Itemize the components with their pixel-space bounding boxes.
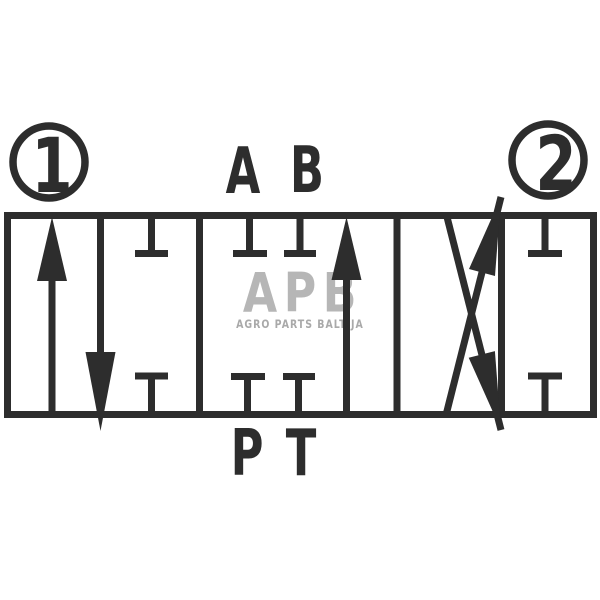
section-3-crossed-arrows <box>447 197 502 430</box>
port-b-label: B <box>290 139 324 203</box>
section-2-neutral <box>231 217 362 414</box>
spool-2-number: 2 <box>535 126 576 202</box>
cross-arrow-up-head <box>469 197 501 276</box>
section-1-parallel-arrows <box>37 215 168 431</box>
blocked-port-bottom-icon <box>135 376 168 412</box>
valve-schematic: APB AGRO PARTS BALTIJA <box>0 0 600 600</box>
port-p-label: P <box>231 422 264 486</box>
cross-arrow-down-head <box>469 351 501 430</box>
down-arrow-head <box>86 352 116 431</box>
section-4-blocked <box>528 218 562 412</box>
valve-diagram-svg <box>0 0 600 600</box>
port-t-label: T <box>286 422 317 486</box>
blocked-port-bottom-icon <box>528 376 562 412</box>
up-arrow-head <box>37 217 67 281</box>
port-a-label: A <box>226 140 261 204</box>
blocked-port-t-icon <box>283 377 315 413</box>
blocked-port-top-icon <box>135 218 168 254</box>
up-arrow-head <box>332 217 362 280</box>
spool-1-number: 1 <box>31 128 72 204</box>
blocked-port-p-icon <box>231 377 265 413</box>
blocked-port-a-icon <box>233 218 267 254</box>
blocked-port-top-icon <box>528 218 562 254</box>
blocked-port-b-icon <box>284 218 316 254</box>
